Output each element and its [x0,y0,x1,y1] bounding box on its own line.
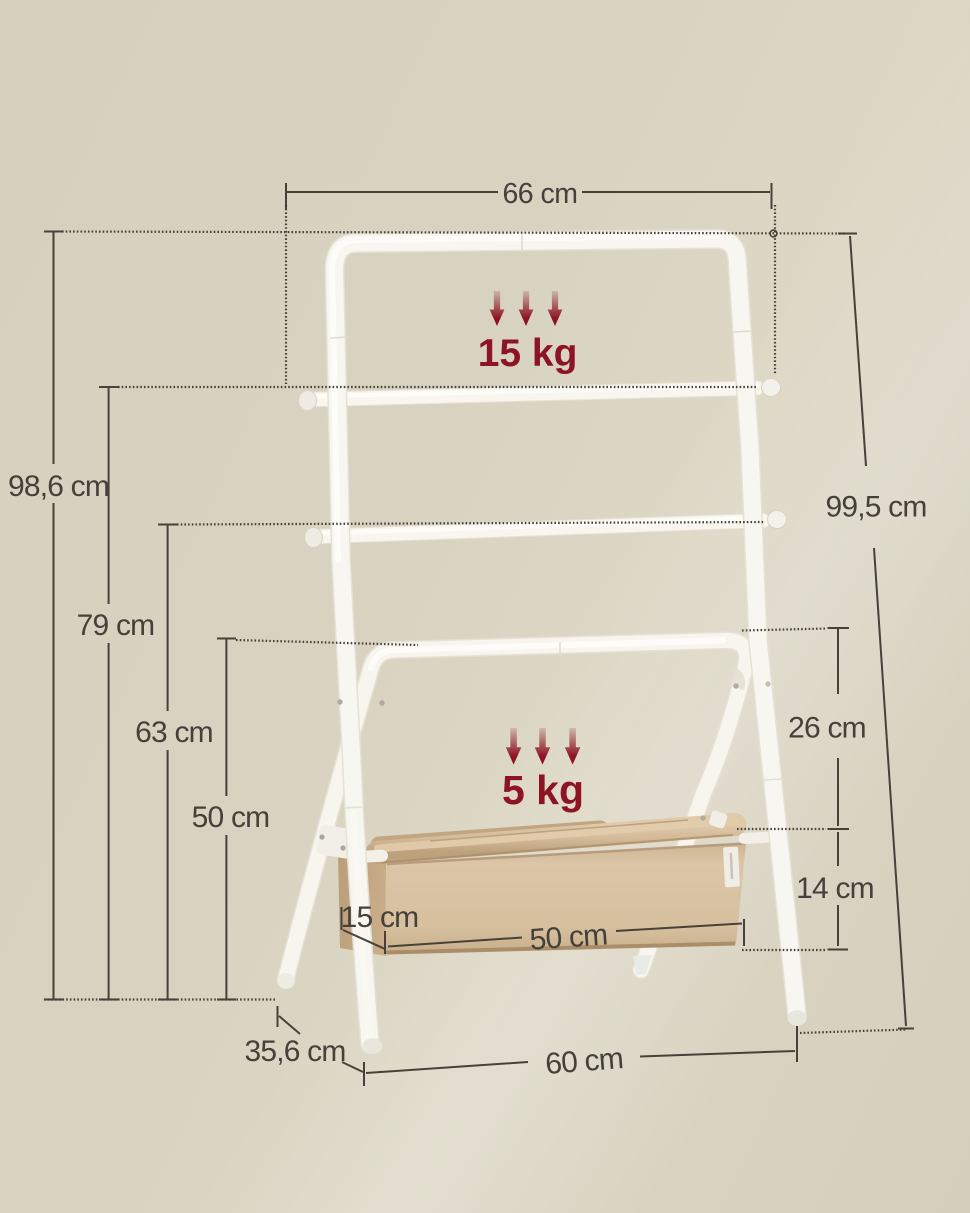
svg-text:5 kg: 5 kg [502,767,584,813]
svg-text:14 cm: 14 cm [796,872,874,905]
svg-text:35,6 cm: 35,6 cm [244,1035,345,1068]
svg-text:60 cm: 60 cm [544,1042,624,1081]
svg-text:15 kg: 15 kg [478,332,578,375]
svg-text:50 cm: 50 cm [192,801,270,834]
svg-text:15 cm: 15 cm [341,901,419,934]
svg-text:98,6 cm: 98,6 cm [8,470,109,503]
svg-text:26 cm: 26 cm [788,712,866,745]
svg-text:50 cm: 50 cm [529,918,609,956]
svg-text:63 cm: 63 cm [135,716,213,749]
svg-text:99,5 cm: 99,5 cm [825,491,926,524]
svg-text:79 cm: 79 cm [77,609,155,642]
svg-text:66 cm: 66 cm [502,178,577,210]
